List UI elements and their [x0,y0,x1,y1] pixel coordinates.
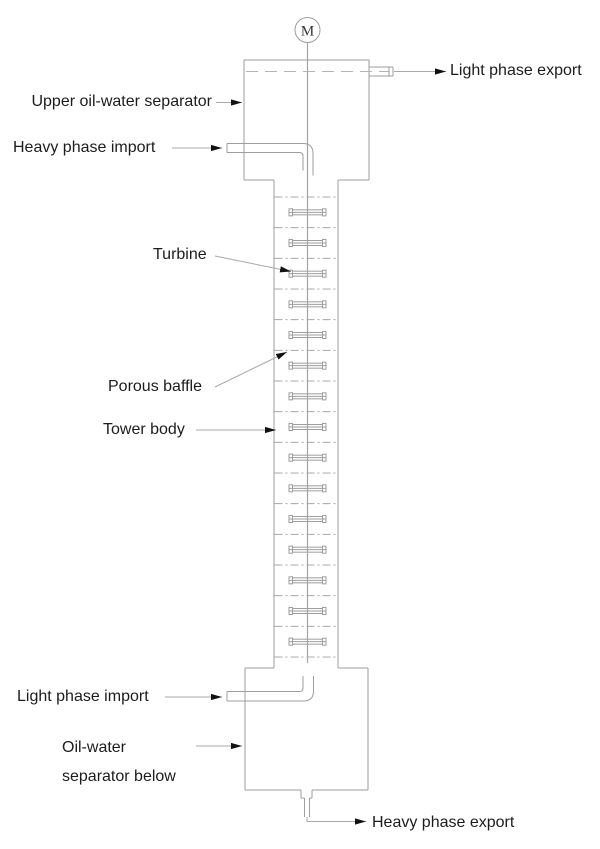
motor-symbol: M [295,18,320,43]
light-phase-export-label: Light phase export [450,61,582,81]
lower-separator-outline [245,668,368,790]
heavy-phase-export-label: Heavy phase export [372,813,514,833]
process-diagram: M [0,0,600,849]
diagram-drawing: M [0,0,600,849]
heavy-export-nozzle [301,790,312,817]
light-phase-import-label: Light phase import [17,687,149,707]
upper-separator-outline [244,60,369,180]
porous-baffle-leader [215,352,287,387]
light-import-pipe [227,676,314,701]
tower-body-outline [274,180,338,668]
porous-baffle-label: Porous baffle [108,377,202,397]
heavy-export-leader [307,817,366,822]
heavy-import-pipe [227,144,313,176]
motor-letter: M [301,24,314,40]
tower-body-label: Tower body [103,420,185,440]
lower-separator-label-line1: Oil-water [62,733,176,762]
upper-separator-label: Upper oil-water separator [12,92,212,112]
heavy-phase-import-label: Heavy phase import [13,138,155,158]
lower-separator-label-line2: separator below [62,762,176,791]
lower-separator-label: Oil-water separator below [62,733,176,791]
turbine-label: Turbine [153,245,207,265]
